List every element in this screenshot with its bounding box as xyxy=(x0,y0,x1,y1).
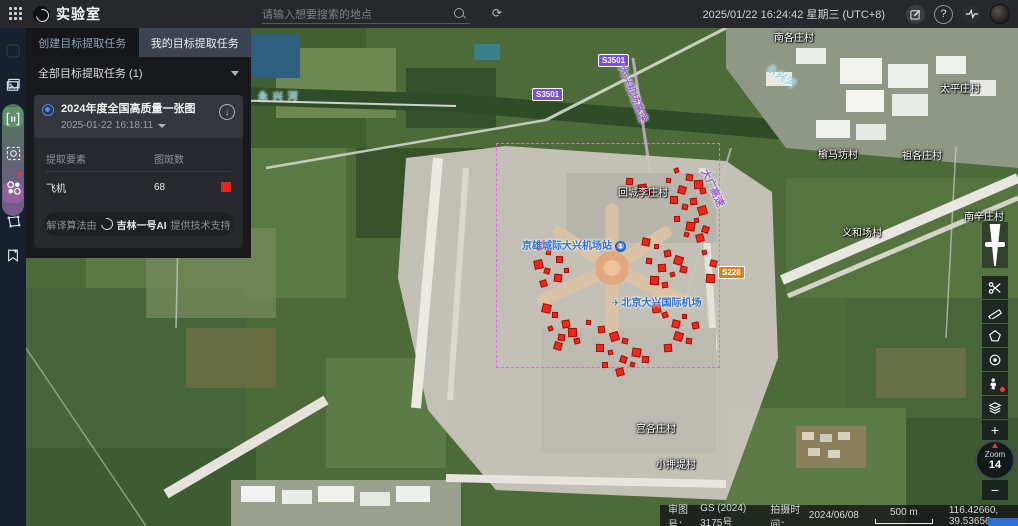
approval-number: GS (2024) 3175号 xyxy=(700,503,753,526)
aircraft-detection-marker[interactable] xyxy=(651,303,661,313)
algo-prefix: 解译算法由 xyxy=(47,217,97,232)
task-radio-selected[interactable] xyxy=(42,104,54,116)
draw-polygon-button[interactable] xyxy=(982,324,1008,347)
download-icon[interactable]: ↓ xyxy=(219,104,235,120)
aircraft-detection-marker[interactable] xyxy=(691,321,699,329)
zoom-label: Zoom xyxy=(985,450,1005,459)
refresh-icon[interactable]: ⟳ xyxy=(492,6,502,20)
aircraft-detection-marker[interactable] xyxy=(666,178,671,183)
brand-logo-icon xyxy=(33,6,50,23)
col-count: 图斑数 xyxy=(154,151,214,166)
app-title: 实验室 xyxy=(56,4,101,24)
polygon-draw-icon[interactable] xyxy=(0,204,26,238)
scale-line xyxy=(875,519,933,524)
search-icon[interactable] xyxy=(453,7,466,20)
jilin1-logo-icon xyxy=(98,216,115,233)
task-datetime[interactable]: 2025-01-22 16:18:11 xyxy=(61,120,195,131)
algo-brand: 吉林一号AI xyxy=(117,217,167,232)
aircraft-detection-marker[interactable] xyxy=(546,250,552,256)
aircraft-detection-marker[interactable] xyxy=(602,362,608,368)
satellite-map[interactable]: 永 兴 河永兴河南各庄村太平庄村榆马坊村祖各庄村南辛庄村义和场村回城李庄村宫各庄… xyxy=(26,28,1018,526)
tab-create-task[interactable]: 创建目标提取任务 xyxy=(26,28,139,57)
task-card[interactable]: 2024年度全国高质量一张图 2025-01-22 16:18:11 ↓ 提取要… xyxy=(34,95,243,248)
algorithm-credit: 解译算法由 吉林一号AI 提供技术支持 xyxy=(44,212,233,236)
zoom-out-button[interactable]: − xyxy=(982,480,1008,500)
task-title: 2024年度全国高质量一张图 xyxy=(61,102,195,116)
aircraft-detection-marker[interactable] xyxy=(631,347,641,357)
aircraft-detection-marker[interactable] xyxy=(598,326,606,334)
layers-button[interactable] xyxy=(982,396,1008,419)
aircraft-detection-marker[interactable] xyxy=(690,198,698,206)
algo-suffix: 提供技术支持 xyxy=(171,217,231,232)
user-avatar[interactable] xyxy=(990,4,1010,24)
feature-count: 68 xyxy=(154,182,214,193)
zoom-in-button[interactable]: + xyxy=(982,420,1008,440)
help-icon[interactable]: ? xyxy=(934,5,953,24)
notification-dot xyxy=(1000,387,1005,392)
aircraft-detection-marker[interactable] xyxy=(556,256,563,263)
aircraft-detection-marker[interactable] xyxy=(554,274,563,283)
capture-date: 2024/06/08 xyxy=(809,510,859,521)
chevron-down-icon xyxy=(231,71,239,76)
street-view-button[interactable] xyxy=(982,372,1008,395)
scale-text: 500 m xyxy=(890,507,918,518)
map-tile-corner xyxy=(988,518,1018,526)
aircraft-detection-marker[interactable] xyxy=(626,178,633,185)
aircraft-detection-marker[interactable] xyxy=(586,320,591,325)
locate-button[interactable] xyxy=(982,348,1008,371)
left-icon-rail xyxy=(0,28,26,526)
target-extraction-icon[interactable] xyxy=(0,102,26,136)
aircraft-detection-marker[interactable] xyxy=(663,249,671,257)
aircraft-detection-marker[interactable] xyxy=(642,356,649,363)
aircraft-detection-marker[interactable] xyxy=(682,314,687,319)
imagery-icon[interactable] xyxy=(0,68,26,102)
feedback-form-icon[interactable] xyxy=(906,5,925,24)
panel-tabs: 创建目标提取任务 我的目标提取任务 xyxy=(26,28,251,57)
aircraft-detection-marker[interactable] xyxy=(686,338,693,345)
aircraft-detection-marker[interactable] xyxy=(557,333,565,341)
task-panel: 创建目标提取任务 我的目标提取任务 全部目标提取任务 (1) 2024年度全国高… xyxy=(26,28,251,258)
search-placeholder: 请输入想要搜索的地点 xyxy=(262,6,453,22)
aircraft-detection-marker[interactable] xyxy=(685,173,693,181)
task-card-header[interactable]: 2024年度全国高质量一张图 2025-01-22 16:18:11 ↓ xyxy=(34,95,243,138)
col-feature: 提取要素 xyxy=(46,151,154,166)
aircraft-detection-marker[interactable] xyxy=(671,319,680,328)
aircraft-detection-marker[interactable] xyxy=(533,259,544,270)
feature-color-swatch xyxy=(221,182,231,192)
map-status-bar: 审图号：GS (2024) 3175号 拍摄时间：2024/06/08 500 … xyxy=(660,505,1018,526)
aircraft-detection-marker[interactable] xyxy=(646,258,653,265)
chevron-down-icon xyxy=(158,124,166,128)
aircraft-detection-marker[interactable] xyxy=(674,216,680,222)
result-table: 提取要素 图斑数 飞机 68 xyxy=(34,138,243,202)
aircraft-detection-marker[interactable] xyxy=(658,264,667,273)
task-filter-dropdown[interactable]: 全部目标提取任务 (1) xyxy=(26,57,251,89)
table-row[interactable]: 飞机 68 xyxy=(46,172,231,202)
aircraft-detection-marker[interactable] xyxy=(685,221,695,231)
tilt-slider-handle[interactable] xyxy=(985,242,1005,247)
approval-label: 审图号： xyxy=(668,501,694,526)
app-grid-icon[interactable] xyxy=(9,7,23,21)
task-filter-label: 全部目标提取任务 (1) xyxy=(38,65,143,81)
zoom-dial[interactable]: Zoom 14 xyxy=(975,440,1015,480)
feature-name: 飞机 xyxy=(46,180,154,195)
tab-my-tasks[interactable]: 我的目标提取任务 xyxy=(139,28,252,57)
region-select-icon[interactable] xyxy=(0,136,26,170)
aircraft-detection-marker[interactable] xyxy=(552,312,558,318)
clip-tool-button[interactable] xyxy=(982,276,1008,299)
top-bar: 实验室 请输入想要搜索的地点 ⟳ 2025/01/22 16:24:42 星期三… xyxy=(0,0,1018,28)
aircraft-detection-marker[interactable] xyxy=(621,337,628,344)
ai-apps-icon[interactable] xyxy=(0,170,26,204)
aircraft-detection-marker[interactable] xyxy=(564,268,569,273)
notification-dot xyxy=(18,172,22,176)
aircraft-detection-marker[interactable] xyxy=(681,203,688,210)
map-toolbar: + Zoom 14 − xyxy=(982,222,1008,500)
bookmark-add-icon[interactable] xyxy=(0,238,26,272)
aircraft-detection-marker[interactable] xyxy=(596,344,604,352)
aircraft-detection-marker[interactable] xyxy=(568,328,577,337)
place-search-input[interactable]: 请输入想要搜索的地点 xyxy=(262,4,470,24)
aircraft-detection-marker[interactable] xyxy=(664,344,673,353)
datetime-text: 2025/01/22 16:24:42 星期三 (UTC+8) xyxy=(702,6,885,22)
app-slot-icon[interactable] xyxy=(0,34,26,68)
aircraft-detection-marker[interactable] xyxy=(706,274,715,283)
aircraft-detection-marker[interactable] xyxy=(637,183,647,193)
tilt-slider[interactable] xyxy=(982,222,1008,268)
aircraft-detection-marker[interactable] xyxy=(662,282,669,289)
aircraft-detection-marker[interactable] xyxy=(654,244,659,249)
capture-label: 拍摄时间： xyxy=(770,501,803,526)
zoom-dial-marker xyxy=(992,443,998,448)
aircraft-detection-marker[interactable] xyxy=(641,237,650,246)
zoom-level: 14 xyxy=(989,459,1001,471)
scale-bar: 500 m xyxy=(875,507,933,524)
activity-pulse-icon[interactable] xyxy=(962,5,981,24)
app-window: 实验室 请输入想要搜索的地点 ⟳ 2025/01/22 16:24:42 星期三… xyxy=(0,0,1018,526)
aircraft-detection-marker[interactable] xyxy=(608,350,614,356)
aircraft-detection-marker[interactable] xyxy=(650,276,659,285)
measure-tool-button[interactable] xyxy=(982,300,1008,323)
aircraft-detection-marker[interactable] xyxy=(670,196,678,204)
task-datetime-text: 2025-01-22 16:18:11 xyxy=(61,120,153,131)
